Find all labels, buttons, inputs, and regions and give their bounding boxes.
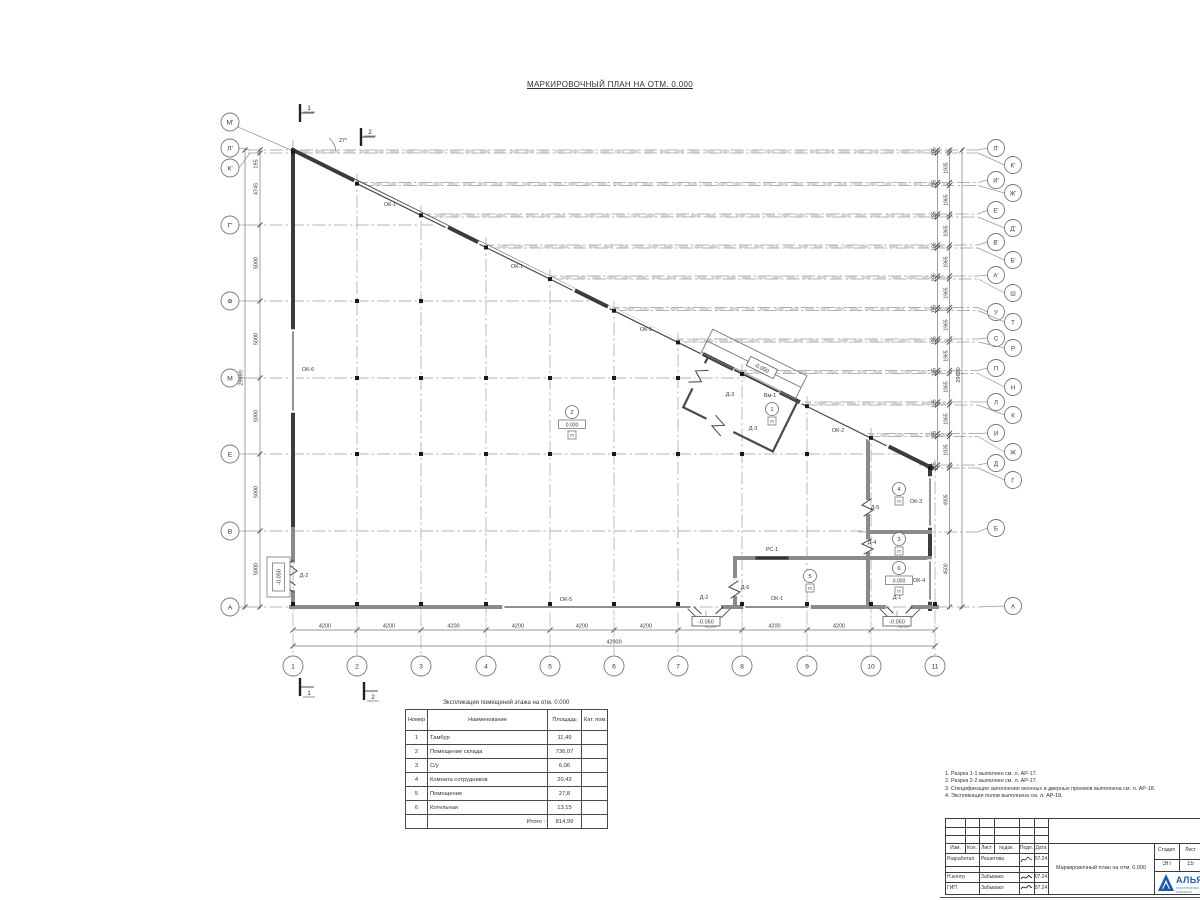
wall-element-label: ОК-5 [560, 597, 572, 603]
axis-bubble-bottom-label: 6 [612, 663, 616, 670]
dim-value: 195 [932, 273, 938, 282]
tambour-door-symbol [689, 365, 708, 387]
axis-bubble-right-label: Б [994, 526, 998, 532]
axis-bubble-bottom-label: 1 [291, 663, 295, 670]
axis-bubble-right-label: Р [1011, 346, 1015, 352]
column-marker [740, 602, 744, 606]
angle-annotation: 27° [329, 138, 347, 151]
dim-value: 5000 [254, 257, 260, 269]
wall-element-label: ОК-4 [913, 578, 925, 584]
tb-header-podp: Подп. [1019, 845, 1034, 851]
axis-leader [239, 153, 250, 168]
section-label: 2 [371, 695, 375, 701]
axis-bubble-left-label: К' [227, 165, 232, 172]
title-block: Изм. Кол. Лист №док. Подп. Дата Разработ… [945, 818, 1200, 895]
tb-sheet-value: 15 [1179, 861, 1200, 867]
column-marker [484, 602, 488, 606]
wall-element-label: ОК-6 [302, 367, 314, 373]
wall-element-label: ОК-1 [511, 264, 523, 270]
room-cat [582, 745, 608, 759]
explication-caption: Экспликация помещений этажа на отм. 0.00… [405, 700, 607, 706]
dim-value: 4200 [383, 624, 395, 630]
logo-subtext: строительная компания [1176, 886, 1200, 894]
room-num: 4 [406, 773, 428, 787]
dim-value: 1965 [944, 350, 950, 361]
total-label: Итого : [428, 815, 548, 829]
room-name: Помещение склада [428, 745, 548, 759]
dim-value: 195 [932, 147, 938, 156]
dim-value: 195 [932, 305, 938, 314]
table-row: 6 Котельная 13,15 [406, 801, 608, 815]
entrance-porches [688, 609, 920, 617]
col-header-cat: Кат. пом. [582, 710, 608, 731]
axis-leader [978, 338, 988, 339]
axis-bubble-left-label: Е [228, 451, 233, 458]
section-mark-1-top: 1 [300, 104, 315, 122]
axis-bubble-right-label: Д [994, 461, 998, 467]
dim-value: 195 [932, 368, 938, 377]
axis-bubble-right-label: У [994, 310, 998, 316]
column-marker [548, 376, 552, 380]
room-level: 0.000 [893, 578, 906, 584]
dim-value: 1965 [944, 225, 950, 236]
tb-date: 07.24 [1034, 874, 1048, 880]
dim-value: 4200 [447, 624, 459, 630]
axis-bubble-left-label: М [227, 375, 233, 382]
tb-header-list: Лист [979, 845, 994, 851]
column-marker [548, 602, 552, 606]
axis-leader [978, 210, 988, 214]
dim-total: 29690 [239, 370, 245, 385]
dim-value: 5000 [254, 563, 260, 575]
axis-leader [978, 242, 988, 245]
axis-bubble-right-label: Ж [1010, 450, 1016, 456]
note-line: 1. Разрез 1-1 выполнен см. л. АР-17. [945, 771, 1197, 778]
col-header-area: Площадь [548, 710, 582, 731]
dim-value: 195 [932, 180, 938, 189]
axis-bubble-right-label: Л' [993, 146, 998, 152]
column-marker [291, 602, 295, 606]
wall-element-label: Д-2 [300, 573, 309, 579]
axis-leader [978, 368, 988, 371]
room-name: С/у [428, 759, 548, 773]
column-marker [355, 602, 359, 606]
room-area: 11,49 [548, 731, 582, 745]
axis-bubble-right-label: Б' [1010, 258, 1015, 264]
signature [1020, 873, 1033, 882]
axis-leader [978, 148, 988, 150]
wall-element-label: ОК-2 [832, 428, 844, 434]
wall-element-label: Д-4 [868, 540, 877, 546]
tb-role: Н.контр [947, 874, 979, 880]
column-marker [419, 213, 423, 217]
room-cat [582, 801, 608, 815]
floor-type: П [897, 549, 901, 555]
axis-bubble-left-label: Л' [227, 145, 233, 152]
axis-bubble-right-label: А [1011, 604, 1015, 610]
column-marker [676, 602, 680, 606]
dim-value: 195 [932, 431, 938, 440]
axis-bubble-left-label: А [228, 604, 233, 611]
wall-element-label: ОК-1 [771, 596, 783, 602]
tb-header-ndok: №док. [994, 845, 1019, 851]
column-marker [548, 277, 552, 281]
room-num: 1 [406, 731, 428, 745]
dim-value: 195 [932, 336, 938, 345]
annotation-layer: М'Л'К'Г'ФМЕВАЛ'К'И'Ж'Е'Д'В'Б'А'ШУТСРПНЛК… [221, 113, 1022, 676]
dim-value: 4200 [576, 624, 588, 630]
axis-leader [978, 528, 988, 532]
axis-leader [239, 148, 250, 150]
dim-value: 4200 [833, 624, 845, 630]
room-cat [582, 787, 608, 801]
axis-bubble-right-label: И' [993, 178, 998, 184]
axis-bubble-right-label: К' [1011, 163, 1016, 169]
angle-value: 27° [339, 138, 347, 144]
dim-value: 5000 [254, 333, 260, 345]
room-cat [582, 731, 608, 745]
room-name: Комната сотрудников [428, 773, 548, 787]
col-header-num: Номер помещ. [406, 710, 428, 731]
table-row: 5 Помещение 27,8 [406, 787, 608, 801]
drawing-sheet: { "page_title": "МАРКИРОВОЧНЫЙ ПЛАН НА О… [0, 0, 1200, 900]
column-marker [612, 452, 616, 456]
room-name: Котельная [428, 801, 548, 815]
table-row: 2 Помещение склада 736,07 [406, 745, 608, 759]
axis-leader [978, 433, 988, 434]
axis-bubble-right-label: И [994, 431, 998, 437]
axis-bubble-right-label: К [1011, 413, 1015, 419]
dim-value: 1965 [944, 256, 950, 267]
wall-element-label: Д-5 [871, 505, 880, 511]
column-marker [740, 372, 744, 376]
section-label: 1 [307, 106, 311, 112]
axis-bubble-bottom-label: 7 [676, 663, 680, 670]
level-value: -0.050 [889, 620, 905, 626]
section-label: 1 [307, 691, 311, 697]
axis-bubble-right-label: П [994, 366, 998, 372]
room-cat [582, 773, 608, 787]
dim-value: 195 [932, 211, 938, 220]
dim-value: 4200 [319, 624, 331, 630]
tb-name: Забывако [981, 885, 1019, 891]
axis-leader [978, 275, 988, 276]
floor-type: П [808, 586, 812, 592]
wall-element-label: ОК-1 [640, 327, 652, 333]
tb-date: 07.24 [1034, 856, 1048, 862]
dim-value: 1965 [944, 287, 950, 298]
floor-type: П [770, 419, 774, 425]
wall-element-label: Д-1 [893, 595, 902, 601]
dim-value: 4200 [640, 624, 652, 630]
room-num: 6 [406, 801, 428, 815]
tb-stage-label: Стадия [1154, 847, 1179, 853]
axis-leader [978, 606, 1005, 607]
tb-stage-value: ЭП [1154, 861, 1179, 867]
dim-value: 4745 [254, 183, 260, 195]
wall-element-label: Д-3 [749, 426, 758, 432]
room-area: 6,06 [548, 759, 582, 773]
tb-header-kol: Кол. [965, 845, 979, 851]
sheet-border-line [940, 897, 1200, 898]
axis-bubble-bottom-label: 11 [931, 663, 938, 670]
tb-header-data: Дата [1034, 845, 1048, 851]
room-number: 6 [897, 566, 900, 572]
room-num: 3 [406, 759, 428, 773]
column-marker [676, 340, 680, 344]
column-marker [355, 182, 359, 186]
section-mark-2-top: 2 [361, 128, 376, 146]
column-marker [484, 245, 488, 249]
column-marker [419, 452, 423, 456]
axis-bubble-bottom-label: 8 [740, 663, 744, 670]
axis-bubble-right-label: С [994, 336, 999, 342]
dim-value: 1935 [944, 162, 950, 173]
total-value: 814,99 [548, 815, 582, 829]
room-number: 3 [897, 537, 900, 543]
column-marker [805, 404, 809, 408]
dim-value: 5000 [254, 486, 260, 498]
total-cat [582, 815, 608, 829]
col-header-name: Наименование [428, 710, 548, 731]
column-marker [355, 299, 359, 303]
column-marker [805, 602, 809, 606]
dim-value: 4200 [768, 624, 780, 630]
walls-layer: -0.050 -0.050 [267, 150, 937, 617]
wall-element-label: ОК-1 [384, 202, 396, 208]
dim-total: 29690 [956, 367, 962, 382]
section-marks: 1 2 1 2 27° [300, 104, 379, 701]
axis-leader [978, 217, 1005, 228]
axis-bubble-left-label: Г' [228, 222, 233, 229]
logo-text: АЛЬЯНС [1176, 875, 1200, 885]
axis-bubble-bottom-label: 3 [419, 663, 423, 670]
tb-sheet-label: Лист [1179, 847, 1200, 853]
column-marker [676, 376, 680, 380]
axis-bubble-right-label: Л [994, 400, 998, 406]
room-num: 2 [406, 745, 428, 759]
dim-value: 195 [254, 159, 260, 168]
axis-leader [978, 463, 988, 465]
room-area: 27,8 [548, 787, 582, 801]
table-row: 3 С/у 6,06 [406, 759, 608, 773]
left-level-value: -0.050 [277, 569, 283, 585]
column-marker [933, 602, 937, 606]
room-number: 1 [770, 407, 773, 413]
explication-table: Экспликация помещений этажа на отм. 0.00… [405, 700, 607, 829]
column-marker [805, 452, 809, 456]
tb-header-izm: Изм. [946, 845, 965, 851]
axis-bubble-left-label: Ф [227, 298, 232, 305]
room-name: Тамбур [428, 731, 548, 745]
wall-element-label: Д-6 [741, 585, 750, 591]
dim-total: 42000 [606, 640, 621, 646]
dim-value: 195 [932, 399, 938, 408]
dim-value: 4905 [944, 494, 950, 505]
column-marker [419, 602, 423, 606]
wall-element-label: Вм-1 [764, 393, 776, 399]
room-area: 13,15 [548, 801, 582, 815]
note-line: 4. Экспликация полов выполнена см. л. АР… [945, 793, 1197, 800]
note-line: 2. Разрез 2-2 выполнен см. л. АР-17. [945, 778, 1197, 785]
dim-value: 195 [932, 462, 938, 471]
dim-value: 1965 [944, 413, 950, 424]
dim-value: 4200 [512, 624, 524, 630]
room-area: 20,42 [548, 773, 582, 787]
tb-doc-title: Маркировочный план на отм. 0.000 [1048, 843, 1154, 894]
column-marker [612, 376, 616, 380]
table-row: 1 Тамбур 11,49 [406, 731, 608, 745]
room-cat [582, 759, 608, 773]
column-marker [484, 452, 488, 456]
column-marker [419, 299, 423, 303]
room-area: 736,07 [548, 745, 582, 759]
axis-bubble-right-label: Д' [1010, 226, 1015, 232]
dim-value: 1965 [944, 381, 950, 392]
sheet-notes: 1. Разрез 1-1 выполнен см. л. АР-17. 2. … [945, 771, 1197, 801]
column-marker [740, 452, 744, 456]
total-empty [406, 815, 428, 829]
axis-bubble-left-label: М' [227, 119, 234, 126]
axis-bubble-right-label: А' [993, 273, 998, 279]
axis-bubble-bottom-label: 9 [805, 663, 809, 670]
room-num: 5 [406, 787, 428, 801]
signature [1020, 854, 1033, 865]
room-level: 0.000 [566, 422, 579, 428]
tb-line [946, 866, 1048, 867]
tb-line [1154, 859, 1200, 860]
floor-type: П [570, 433, 574, 439]
table-total-row: Итого : 814,99 [406, 815, 608, 829]
wall-element-label: Д-2 [700, 595, 709, 601]
axis-bubble-bottom-label: 5 [548, 663, 552, 670]
dim-value: 1965 [944, 319, 950, 330]
column-marker [291, 150, 295, 154]
room-name: Помещение [428, 787, 548, 801]
tb-role: Разработал [947, 856, 979, 862]
left-level-mark: -0.050 [267, 557, 290, 597]
room-number: 2 [570, 410, 573, 416]
axis-bubble-bottom-label: 2 [355, 663, 359, 670]
column-marker [355, 376, 359, 380]
signature [1020, 883, 1033, 892]
axis-bubble-right-label: Е' [993, 208, 998, 214]
tb-date: 07.24 [1034, 885, 1048, 891]
axis-bubble-left-label: В [228, 528, 233, 535]
column-marker [869, 436, 873, 440]
logo-triangle-icon [1157, 873, 1175, 893]
dim-value: 1935 [944, 444, 950, 455]
column-marker [419, 376, 423, 380]
axis-bubble-right-label: Т [1011, 320, 1015, 326]
axis-leader [978, 248, 1005, 260]
floor-type: П [897, 499, 901, 505]
tb-name: Решетова [981, 856, 1019, 862]
axis-bubble-bottom-label: 10 [867, 663, 875, 670]
dim-value: 195 [932, 242, 938, 251]
section-label: 2 [368, 130, 372, 136]
table-row: 4 Комната сотрудников 20,42 [406, 773, 608, 787]
note-line: 3. Спецификация заполнения оконных и две… [945, 786, 1197, 793]
column-marker [548, 452, 552, 456]
column-marker [869, 602, 873, 606]
axis-bubble-right-label: Ш [1010, 291, 1016, 297]
column-marker [484, 376, 488, 380]
tb-line [946, 835, 1048, 836]
tb-line [946, 827, 1048, 828]
wall-element-label: ОК-3 [910, 499, 922, 505]
level-value: -0.050 [698, 620, 714, 626]
column-marker [612, 602, 616, 606]
axis-leader [238, 127, 291, 150]
floor-type: П [897, 589, 901, 595]
tambour-door-symbol [709, 416, 728, 436]
tb-name: Забывако [981, 874, 1019, 880]
section-mark-1-bottom: 1 [300, 678, 315, 697]
column-marker [612, 309, 616, 313]
axis-bubble-right-label: В' [993, 240, 998, 246]
dim-value: 5000 [254, 410, 260, 422]
axis-bubble-right-label: Ж' [1010, 191, 1017, 197]
tb-role: ГИП [947, 885, 979, 891]
section-mark-2-bottom: 2 [364, 682, 379, 701]
room-number: 5 [808, 574, 811, 580]
company-logo: АЛЬЯНС строительная компания [1154, 871, 1200, 894]
dim-value: 1965 [944, 194, 950, 205]
wall-element-label: Д-3 [726, 392, 735, 398]
wall-element-label: РС-1 [766, 547, 778, 553]
axis-bubble-right-label: Н [1011, 385, 1015, 391]
column-marker [928, 466, 932, 470]
axis-leader [978, 180, 988, 183]
dim-value: 4500 [944, 563, 950, 574]
column-marker [676, 452, 680, 456]
column-marker [355, 452, 359, 456]
axis-bubble-bottom-label: 4 [484, 663, 488, 670]
